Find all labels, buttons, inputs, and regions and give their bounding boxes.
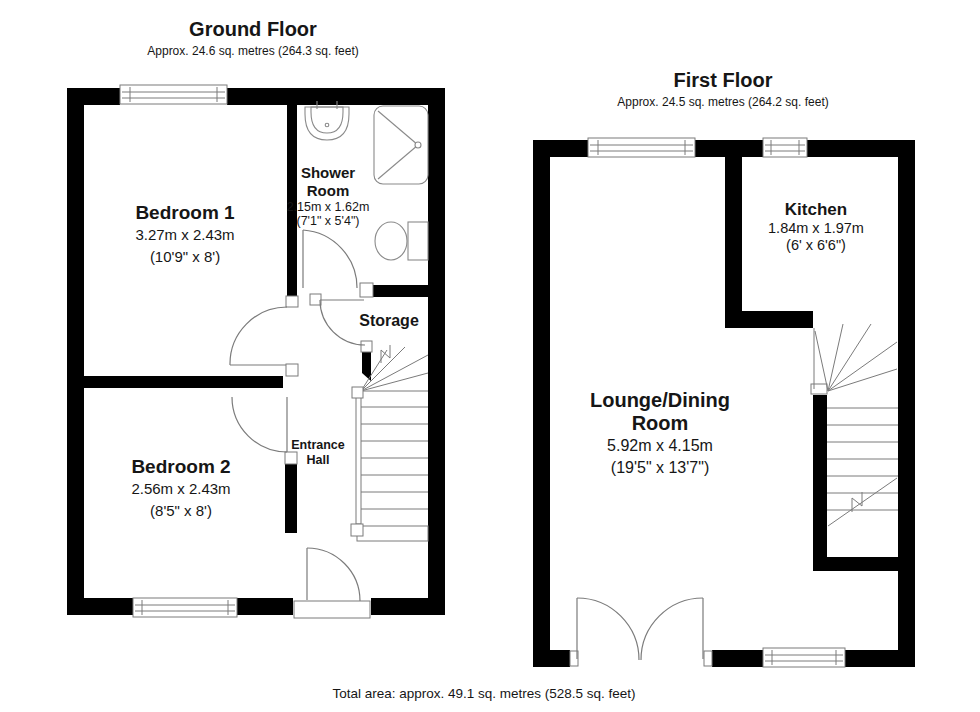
room-dim-metric: 2.15m x 1.62m [287, 200, 370, 214]
french-doors-icon [577, 598, 703, 660]
ground-floor-subtitle: Approx. 24.6 sq. metres (264.3 sq. feet) [147, 45, 358, 59]
room-name: Bedroom 2 [131, 455, 230, 478]
first-floor-header: First Floor Approx. 24.5 sq. metres (264… [617, 69, 828, 110]
ground-floor-header: Ground Floor Approx. 24.6 sq. metres (26… [147, 18, 358, 59]
first-floor-subtitle: Approx. 24.5 sq. metres (264.2 sq. feet) [617, 96, 828, 110]
entrance-door-sill [294, 601, 370, 618]
room-dim-imperial: (8'5" x 8') [131, 500, 230, 522]
total-area-text: Total area: approx. 49.1 sq. metres (528… [332, 686, 635, 702]
room-dim-metric: 3.27m x 2.43m [135, 224, 234, 246]
room-name: Lounge/Dining Room [580, 389, 740, 435]
room-dim-imperial: (7'1" x 5'4") [287, 214, 370, 228]
room-dim-imperial: (10'9" x 8') [135, 246, 234, 268]
room-dim-imperial: (19'5" x 13'7") [580, 457, 740, 479]
floorplan-page: Ground Floor Approx. 24.6 sq. metres (26… [0, 0, 980, 712]
shower-tray-icon [374, 106, 428, 184]
room-label-hall: Entrance Hall [288, 438, 348, 468]
room-label-storage: Storage [359, 312, 419, 330]
room-dim-metric: 1.84m x 1.97m [768, 220, 864, 237]
window-icon [763, 648, 845, 667]
room-label-bedroom2: Bedroom 2 2.56m x 2.43m (8'5" x 8') [131, 455, 230, 522]
ground-floor-title: Ground Floor [147, 18, 358, 41]
room-dim-metric: 2.56m x 2.43m [131, 478, 230, 500]
staircase-icon [351, 345, 428, 541]
ground-windows [120, 85, 237, 617]
ground-floor-plan [67, 85, 445, 618]
window-icon [133, 598, 237, 617]
room-label-shower: Shower Room 2.15m x 1.62m (7'1" x 5'4") [287, 164, 370, 228]
window-icon [763, 138, 807, 157]
door-swing-icon [307, 548, 360, 601]
first-floor-title: First Floor [617, 69, 828, 92]
door-swing-icon [232, 397, 287, 452]
room-dim-imperial: (6' x 6'6") [768, 237, 864, 254]
room-name: Kitchen [768, 200, 864, 220]
sink-icon [305, 101, 349, 140]
toilet-icon [375, 222, 428, 260]
room-dim-metric: 5.92m x 4.15m [580, 435, 740, 457]
room-name: Shower Room [293, 164, 363, 200]
floorplan-graphics [0, 0, 980, 712]
ground-doors [230, 230, 365, 601]
window-icon [120, 85, 227, 104]
room-label-lounge: Lounge/Dining Room 5.92m x 4.15m (19'5" … [580, 389, 740, 479]
room-name: Storage [359, 312, 419, 330]
room-label-bedroom1: Bedroom 1 3.27m x 2.43m (10'9" x 8') [135, 201, 234, 268]
door-swing-icon [230, 307, 287, 365]
room-name: Bedroom 1 [135, 201, 234, 224]
window-icon [588, 138, 695, 157]
room-name: Entrance Hall [288, 438, 348, 468]
room-label-kitchen: Kitchen 1.84m x 1.97m (6' x 6'6") [768, 200, 864, 254]
door-swing-icon [303, 230, 357, 288]
